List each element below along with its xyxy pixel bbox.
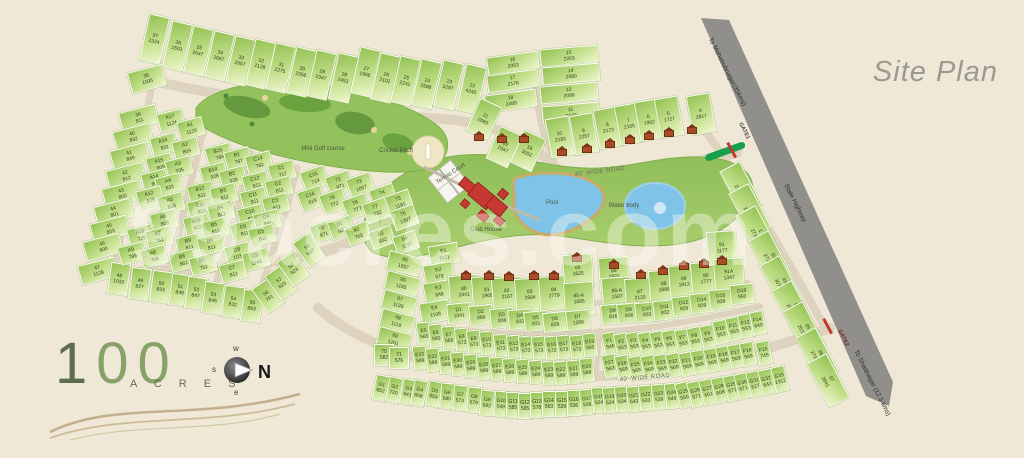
house-icon: [609, 262, 619, 269]
house-icon: [504, 274, 514, 281]
water-body-label: Water body: [609, 203, 639, 209]
compass-e: e: [234, 388, 238, 397]
house-icon: [519, 136, 529, 143]
compass-n: N: [258, 362, 271, 383]
project-logo: 100 A C R E S: [55, 330, 335, 450]
house-icon: [644, 133, 654, 140]
house-icon: [474, 134, 484, 141]
compass-w: w: [233, 344, 239, 353]
house-icon: [664, 130, 674, 137]
club-house-label: Club House: [470, 227, 501, 233]
mini-golf-label: Mini Golf course: [301, 146, 344, 152]
compass-s: s: [212, 365, 216, 374]
house-icon: [557, 149, 567, 156]
pool-label: Pool: [546, 200, 558, 206]
house-icon: [687, 127, 697, 134]
house-icon: [572, 255, 582, 262]
house-icon: [497, 136, 507, 143]
page-title: Site Plan: [873, 56, 998, 89]
house-icon: [679, 263, 689, 270]
cricket-pitch-label: Cricket Pitch: [379, 148, 413, 154]
house-icon: [717, 258, 727, 265]
house-icon: [636, 272, 646, 279]
house-icon: [658, 268, 668, 275]
house-icon: [529, 273, 539, 280]
logo-swoosh: [45, 392, 325, 442]
house-icon: [625, 137, 635, 144]
site-plan-page: 3723243615033520473420673320573221283122…: [0, 0, 1024, 458]
house-icon: [605, 141, 615, 148]
house-icon: [582, 146, 592, 153]
house-icon: [699, 261, 709, 268]
house-icon: [461, 273, 471, 280]
compass: N w s e: [200, 342, 280, 405]
house-icon: [549, 273, 559, 280]
house-icon: [484, 273, 494, 280]
